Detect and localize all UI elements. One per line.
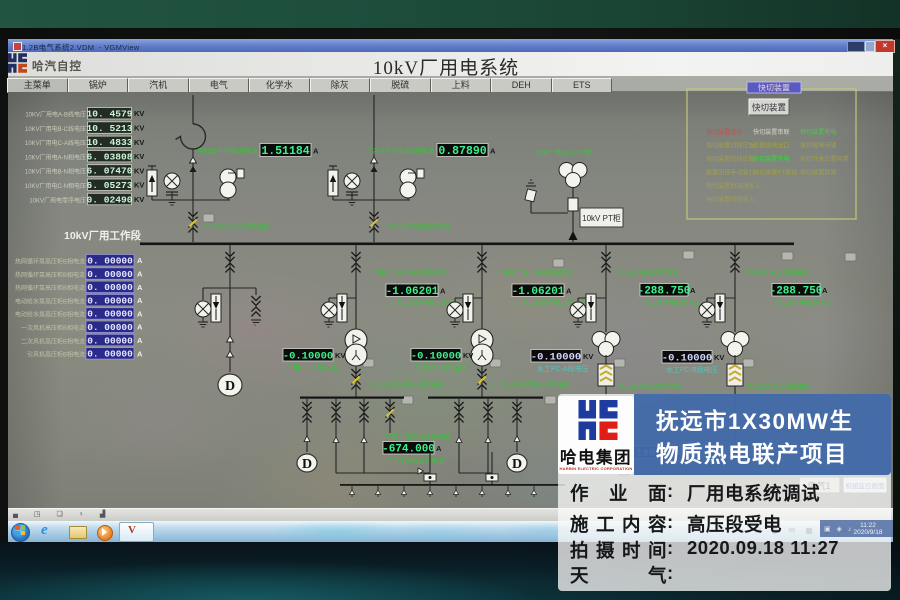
- svg-text:KV: KV: [134, 166, 144, 175]
- svg-text:-0.10000: -0.10000: [411, 351, 461, 363]
- svg-text:10KV厂用电C-N相电压: 10KV厂用电C-N相电压: [25, 182, 86, 190]
- svg-text:水工变-B高压侧电流: 水工变-B高压侧电流: [776, 297, 833, 306]
- svg-text:10kV工作段进线断路器: 10kV工作段进线断路器: [205, 221, 270, 230]
- svg-text:厂用工作变-A高压侧断路器: 厂用工作变-A高压侧断路器: [371, 267, 447, 276]
- svg-text:快切装置串联: 快切装置串联: [753, 128, 790, 136]
- svg-text:A: A: [137, 336, 143, 345]
- svg-text:快切装置PT断线: 快切装置PT断线: [753, 169, 797, 177]
- svg-text:A: A: [822, 286, 828, 295]
- svg-text:KV: KV: [134, 138, 144, 147]
- svg-text:厂用工作变-B高压侧断路器: 厂用工作变-B高压侧断路器: [497, 267, 573, 276]
- svg-text:高压厂用10kV PT柜: 高压厂用10kV PT柜: [536, 148, 592, 157]
- svg-text:10KV厂用电A-B线电压: 10KV厂用电A-B线电压: [25, 111, 86, 119]
- svg-text:10KV厂用电B-N相电压: 10KV厂用电B-N相电压: [25, 168, 86, 176]
- svg-text:A: A: [137, 323, 143, 332]
- svg-text:-0.10000: -0.10000: [662, 353, 712, 365]
- svg-text:A: A: [440, 287, 446, 296]
- svg-text:水工变-B低压侧断路器: 水工变-B低压侧断路器: [747, 381, 811, 390]
- svg-text:A: A: [690, 286, 696, 295]
- svg-text:-288.750: -288.750: [770, 286, 823, 298]
- svg-text:A: A: [490, 147, 496, 156]
- svg-text:A: A: [137, 270, 143, 279]
- svg-text:电动给水泵高压柜B相电流: 电动给水泵高压柜B相电流: [15, 297, 85, 305]
- svg-text:6. 05273: 6. 05273: [86, 180, 132, 191]
- svg-text:引风机高压柜B相电流: 引风机高压柜B相电流: [27, 351, 85, 359]
- svg-text:0. 02490: 0. 02490: [86, 194, 132, 205]
- svg-text:6. 03808: 6. 03808: [86, 151, 132, 162]
- svg-text:10kV PT柜: 10kV PT柜: [582, 213, 621, 223]
- svg-text:保护跳闸闭锁: 保护跳闸闭锁: [800, 142, 837, 150]
- svg-text:-674.000: -674.000: [382, 444, 435, 456]
- svg-text:0. 00000: 0. 00000: [87, 295, 133, 306]
- svg-text:电动给水泵高压柜B相电流: 电动给水泵高压柜B相电流: [15, 311, 85, 319]
- svg-text:A: A: [313, 147, 319, 156]
- svg-text:KV: KV: [134, 109, 144, 118]
- svg-text:10. 5213: 10. 5213: [86, 123, 132, 134]
- svg-text:KV: KV: [134, 124, 144, 133]
- svg-text:10KV厂用电A-N相电压: 10KV厂用电A-N相电压: [25, 153, 86, 161]
- svg-text:快切装置异常: 快切装置异常: [800, 169, 837, 177]
- svg-text:快切装置远方: 快切装置远方: [706, 128, 743, 136]
- svg-text:10. 4579: 10. 4579: [86, 109, 132, 120]
- svg-text:0. 00000: 0. 00000: [87, 349, 133, 360]
- svg-text:KV: KV: [134, 181, 144, 190]
- svg-text:水工变-B高压侧断路器: 水工变-B高压侧断路器: [745, 267, 809, 276]
- svg-text:快切装置: 快切装置: [752, 103, 787, 113]
- svg-text:快切装置失电: 快切装置失电: [800, 128, 837, 136]
- svg-text:KV: KV: [714, 353, 724, 362]
- svg-text:厂用工作段分段断路器: 厂用工作段分段断路器: [385, 432, 451, 441]
- svg-text:装置闭锁手动复归: 装置闭锁手动复归: [706, 169, 755, 177]
- svg-text:快切装置检修压板: 快切装置检修压板: [706, 155, 755, 163]
- svg-text:A: A: [137, 283, 143, 292]
- svg-text:A: A: [566, 287, 572, 296]
- svg-text:10. 4833: 10. 4833: [86, 137, 132, 148]
- svg-text:-1.06201: -1.06201: [386, 286, 439, 298]
- svg-text:水工变-A低压侧断路器: 水工变-A低压侧断路器: [618, 381, 682, 390]
- svg-text:0.87890: 0.87890: [438, 145, 486, 158]
- svg-text:热网循环泵高压柜B相电流: 热网循环泵高压柜B相电流: [15, 271, 85, 279]
- svg-text:A: A: [137, 296, 143, 305]
- svg-text:D: D: [512, 457, 522, 472]
- svg-text:电抗器用电侧B相电流: 电抗器用电侧B相电流: [197, 146, 259, 155]
- svg-text:10KV厂用电B-C线电压: 10KV厂用电B-C线电压: [25, 125, 86, 133]
- svg-text:厂用工作变-B低压侧断路器: 厂用工作变-B低压侧断路器: [494, 379, 570, 388]
- svg-text:0. 00000: 0. 00000: [87, 322, 133, 333]
- svg-text:热网循环泵高压柜B相电流: 热网循环泵高压柜B相电流: [15, 258, 85, 266]
- svg-text:A: A: [137, 349, 143, 358]
- svg-text:-1.06201: -1.06201: [512, 286, 565, 298]
- svg-text:A: A: [436, 444, 442, 453]
- svg-text:D: D: [225, 379, 235, 394]
- svg-text:厂用PC-A段电压: 厂用PC-A段电压: [286, 363, 338, 372]
- svg-text:KV: KV: [134, 195, 144, 204]
- svg-text:快切装置切除压板: 快切装置切除压板: [706, 142, 755, 150]
- svg-text:10KV厂用电C-A线电压: 10KV厂用电C-A线电压: [25, 139, 86, 147]
- svg-text:快切装置闭锁投入: 快切装置闭锁投入: [706, 196, 755, 204]
- svg-text:KV: KV: [335, 351, 345, 360]
- svg-text:装置跳闸出口: 装置跳闸出口: [753, 142, 790, 150]
- svg-text:厂用PC-B段电压: 厂用PC-B段电压: [415, 363, 467, 372]
- svg-text:A: A: [137, 309, 143, 318]
- svg-text:10KV厂用电零序电压: 10KV厂用电零序电压: [29, 196, 86, 204]
- svg-text:快切装置失电: 快切装置失电: [753, 155, 790, 163]
- svg-text:1.51184: 1.51184: [261, 145, 309, 158]
- svg-text:厂用工作变-A低压侧断路器: 厂用工作变-A低压侧断路器: [368, 379, 444, 388]
- svg-text:水工变-A高压侧电流: 水工变-A高压侧电流: [644, 297, 701, 306]
- svg-text:KV: KV: [134, 152, 144, 161]
- svg-text:D: D: [302, 457, 312, 472]
- svg-text:-0.10000: -0.10000: [283, 351, 333, 363]
- svg-text:KV: KV: [463, 351, 473, 360]
- svg-text:A: A: [137, 256, 143, 265]
- svg-text:二次风机高压柜B相电流: 二次风机高压柜B相电流: [21, 337, 85, 345]
- svg-text:快切装置后加速投入: 快切装置后加速投入: [706, 182, 761, 190]
- svg-text:0. 00000: 0. 00000: [87, 256, 133, 267]
- svg-text:厂用工作段分段电流: 厂用工作段分段电流: [386, 456, 445, 465]
- svg-text:6. 07470: 6. 07470: [86, 166, 132, 177]
- svg-text:水工PC-A段电压: 水工PC-A段电压: [537, 364, 589, 373]
- svg-text:一次风机高压柜B相电流: 一次风机高压柜B相电流: [21, 324, 85, 332]
- svg-text:快切开关位置异常: 快切开关位置异常: [800, 155, 849, 163]
- svg-text:0. 00000: 0. 00000: [87, 282, 133, 293]
- svg-text:0. 00000: 0. 00000: [87, 309, 133, 320]
- svg-text:-288.750: -288.750: [638, 286, 691, 298]
- svg-text:水工PC-B段电压: 水工PC-B段电压: [666, 365, 718, 374]
- svg-text:热网循环泵高压柜B相电流: 热网循环泵高压柜B相电流: [15, 284, 85, 292]
- svg-text:快切装置: 快切装置: [758, 83, 790, 93]
- svg-text:10kV厂用工作段: 10kV厂用工作段: [64, 229, 142, 242]
- svg-text:厂高变引接电源B相电流: 厂高变引接电源B相电流: [367, 146, 435, 155]
- svg-text:水工变-A高压侧断路器: 水工变-A高压侧断路器: [616, 267, 680, 276]
- svg-text:KV: KV: [583, 352, 593, 361]
- svg-text:-0.10000: -0.10000: [531, 352, 581, 364]
- svg-text:10kV备用段进线断路器: 10kV备用段进线断路器: [386, 221, 451, 230]
- svg-text:0. 00000: 0. 00000: [87, 335, 133, 346]
- svg-text:0. 00000: 0. 00000: [87, 269, 133, 280]
